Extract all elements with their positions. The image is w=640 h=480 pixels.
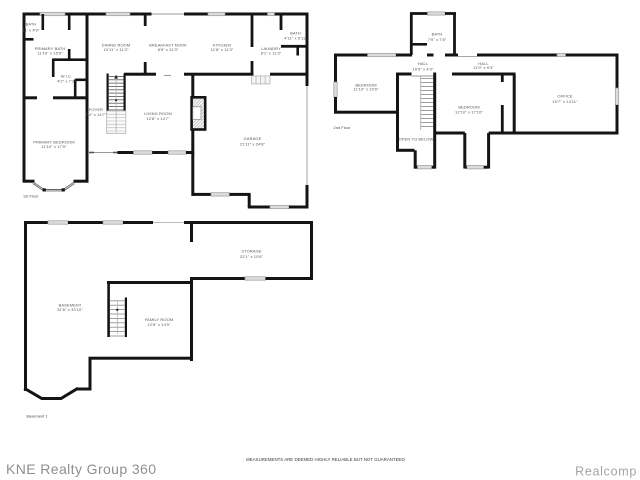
svg-text:31'6" x 33'10": 31'6" x 33'10" — [57, 307, 83, 312]
svg-text:21'11" x 24'8": 21'11" x 24'8" — [240, 141, 266, 146]
svg-text:OFFICE: OFFICE — [557, 94, 572, 99]
svg-text:2nd Floor: 2nd Floor — [334, 126, 352, 130]
svg-text:7'9" x 7'8": 7'9" x 7'8" — [428, 37, 447, 42]
svg-text:HALL: HALL — [418, 61, 429, 66]
svg-text:1st Floor: 1st Floor — [23, 194, 39, 198]
svg-text:8'8" x 11'3": 8'8" x 11'3" — [158, 47, 179, 52]
svg-text:11'10" x 17'9": 11'10" x 17'9" — [41, 144, 67, 149]
svg-text:12'8" x 14'9": 12'8" x 14'9" — [147, 322, 171, 327]
svg-text:4'2" x 7'2": 4'2" x 7'2" — [57, 79, 76, 84]
svg-text:GARAGE: GARAGE — [244, 136, 262, 141]
svg-text:8'1" x 11'3": 8'1" x 11'3" — [261, 51, 282, 56]
svg-text:4'11" x 5'11": 4'11" x 5'11" — [284, 35, 307, 40]
svg-text:7'4" x 14'7": 7'4" x 14'7" — [86, 112, 107, 117]
svg-text:STORAGE: STORAGE — [241, 248, 261, 253]
svg-text:BATH: BATH — [432, 31, 443, 36]
svg-text:12'10" x 17'10": 12'10" x 17'10" — [455, 109, 483, 114]
svg-text:KNE Realty Group 360: KNE Realty Group 360 — [6, 461, 156, 477]
svg-text:11'10" x 15'9": 11'10" x 15'9" — [37, 51, 63, 56]
svg-text:OPEN TO BELOW: OPEN TO BELOW — [399, 137, 434, 142]
svg-text:22'1" x 10'6": 22'1" x 10'6" — [240, 254, 264, 259]
svg-text:Realcomp: Realcomp — [575, 465, 637, 479]
svg-text:MEASUREMENTS ARE DEEMED HIGHLY: MEASUREMENTS ARE DEEMED HIGHLY RELIABLE … — [246, 457, 405, 462]
svg-text:W.I.C.: W.I.C. — [61, 73, 73, 78]
svg-text:11'8" x 11'3": 11'8" x 11'3" — [211, 47, 234, 52]
svg-text:10'11" x 11'3": 10'11" x 11'3" — [104, 47, 129, 52]
svg-text:12'8" x 14'7": 12'8" x 14'7" — [146, 116, 170, 121]
svg-text:10'9" x 4'3": 10'9" x 4'3" — [413, 66, 434, 71]
svg-text:BATH: BATH — [26, 22, 37, 27]
svg-text:Basement 1: Basement 1 — [27, 415, 48, 419]
svg-text:11'9" x 9'3": 11'9" x 9'3" — [473, 65, 494, 70]
svg-text:19'7" x 14'11": 19'7" x 14'11" — [552, 99, 578, 104]
svg-text:11'10" x 10'9": 11'10" x 10'9" — [353, 87, 379, 92]
svg-text:11' x 4'9": 11' x 4'9" — [23, 27, 40, 32]
